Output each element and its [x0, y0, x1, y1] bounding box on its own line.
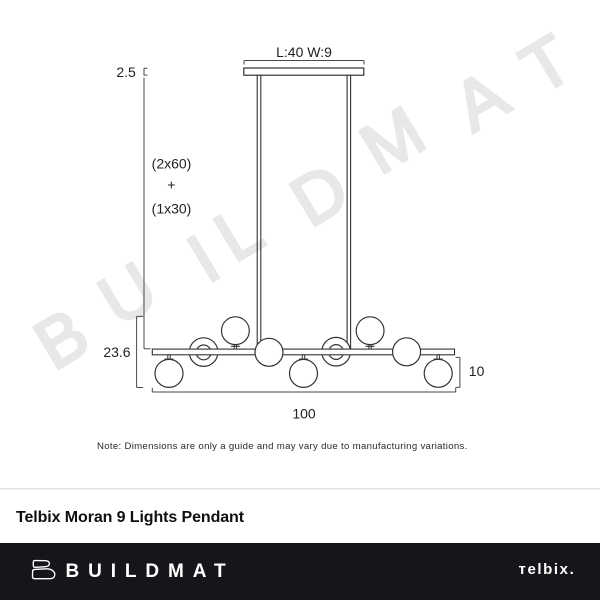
svg-text:T: T: [508, 20, 585, 109]
svg-text:Note: Dimensions are only a gu: Note: Dimensions are only a guide and ma…: [97, 441, 468, 452]
svg-text:BUILDMAT: BUILDMAT: [66, 561, 235, 582]
svg-text:23.6: 23.6: [103, 344, 130, 360]
svg-text:(2x60): (2x60): [152, 156, 192, 172]
svg-text:10: 10: [469, 363, 485, 379]
svg-text:M: M: [347, 91, 437, 188]
svg-text:L:40 W:9: L:40 W:9: [276, 44, 332, 60]
svg-text:100: 100: [292, 406, 316, 422]
svg-text:B: B: [21, 293, 101, 384]
svg-text:(1x30): (1x30): [152, 201, 192, 217]
svg-text:U: U: [86, 247, 170, 340]
svg-text:2.5: 2.5: [116, 64, 136, 80]
svg-text:A: A: [440, 55, 520, 146]
svg-text:+: +: [167, 177, 175, 193]
svg-text:D: D: [278, 148, 362, 241]
svg-text:тelbix.: тelbix.: [519, 561, 576, 578]
svg-text:Telbix Moran 9 Lights Pendant: Telbix Moran 9 Lights Pendant: [16, 509, 245, 526]
